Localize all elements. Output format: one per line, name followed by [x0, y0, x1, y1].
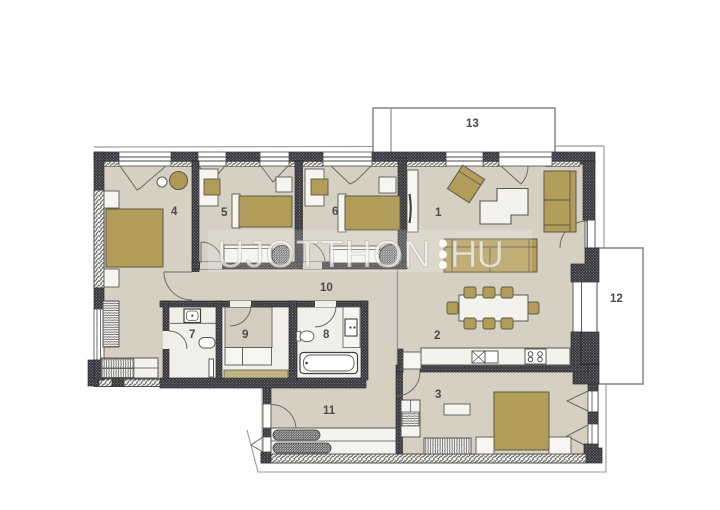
svg-text:7: 7 [189, 329, 195, 341]
svg-text:12: 12 [610, 293, 623, 305]
svg-text:UJOTTHON: UJOTTHON [217, 234, 431, 276]
svg-text:10: 10 [320, 282, 333, 294]
svg-text:1: 1 [435, 207, 442, 219]
svg-text:4: 4 [171, 206, 178, 218]
svg-text:HU: HU [450, 234, 504, 276]
svg-text:2: 2 [434, 330, 440, 342]
svg-text:11: 11 [323, 405, 336, 417]
svg-text:6: 6 [332, 206, 338, 218]
svg-text:9: 9 [242, 329, 248, 341]
svg-text:8: 8 [323, 329, 330, 341]
svg-text:3: 3 [435, 389, 441, 401]
svg-text:13: 13 [466, 118, 479, 130]
svg-text:5: 5 [221, 207, 228, 219]
